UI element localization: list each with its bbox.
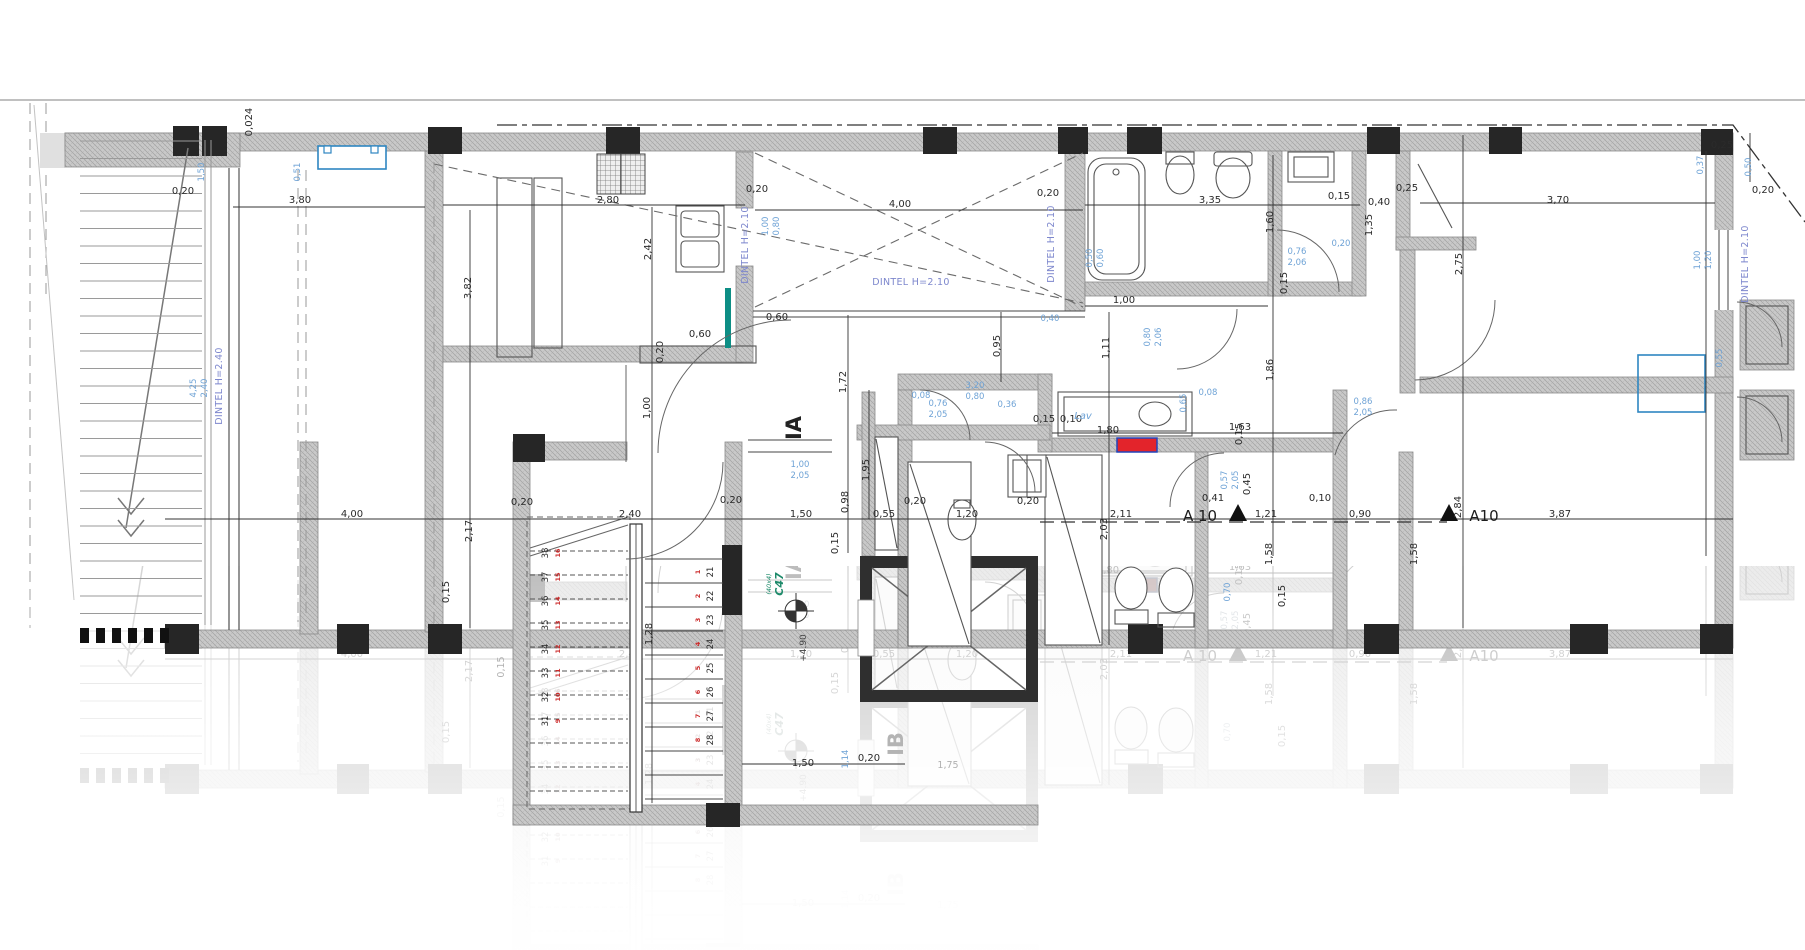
dimension-label: 2,84 [1453,496,1464,518]
dimension-label: 0,25 [1711,140,1733,151]
step-number-red: 16 [554,548,562,558]
opening-dimension-label: 0,57 [1220,471,1230,490]
opening-dimension-label: 0,76 [929,399,948,409]
stair-direction-line [126,148,188,528]
dimension-label: 0,20 [1037,188,1059,199]
dimension-label: 1,28 [644,623,655,645]
opening-dimension-label: 0,50 [1085,249,1095,268]
dimension-label: 1,20 [956,509,978,520]
dimension-label: 1,00 [642,397,653,419]
lintel-label: DINTEL H=2.10 [1740,225,1751,303]
dimension-label: 3,87 [1549,509,1571,520]
dimension-label: 2,75 [1454,253,1465,275]
dimension-label: 0,15 [1033,414,1055,425]
dimension-label: 0,15 [441,581,452,603]
opening-dimension-label: 2,40 [200,379,210,398]
dimension-label: 1,58 [1409,543,1420,565]
opening-dimension-label: 0,40 [1041,314,1060,324]
dimension-label: 2,03 [1099,518,1110,540]
opening-dimension-label: 0,80 [966,392,985,402]
dimension-label: 1,58 [1264,543,1275,565]
floor-plan-drawing: 0,0240,203,802,800,204,000,203,350,150,2… [0,0,1805,950]
opening-dimension-label: 0,36 [998,400,1017,410]
dimension-label: 0,60 [766,312,788,323]
wall-stub [40,133,65,168]
opening-dimension-label: 0,65 [1179,394,1189,413]
step-number: 36 [541,596,551,607]
opening-dimension-label: 2,05 [1354,408,1373,418]
level-label: +4.90 [799,634,809,662]
dimension-label: 1,86 [1265,359,1276,381]
step-number-red: 7 [694,714,702,719]
unit-label-ghost: IB [884,732,908,756]
lintel-label: DINTEL H=2.10 [872,277,950,288]
dimension-label: 1,95 [861,459,872,481]
step-number-red: 3 [694,618,702,623]
opening-dimension-label: 1,14 [841,750,851,769]
step-number-red: 13 [554,620,562,629]
step-number: 23 [706,615,716,626]
column-size-label: (40x4) [765,573,773,594]
dimension-label: 0,95 [992,335,1003,357]
ghost-dimension-label: 0,15 [496,656,507,677]
dimension-label: 0,15 [1328,191,1350,202]
opening-dimension-label: 2,06 [1288,258,1307,268]
dimension-label: 1,50 [790,509,812,520]
dimension-label: 0,20 [904,496,926,507]
floor-plan-canvas: 0,0240,203,802,800,204,000,203,350,150,2… [0,0,1805,950]
dimension-label: 0,20 [1017,496,1039,507]
railing-post [112,628,121,643]
step-number-red: 4 [694,641,702,646]
dimension-label: 0,40 [1368,197,1390,208]
dimension-label: 2,40 [619,509,641,520]
dimension-label: 1,50 [792,758,814,769]
railing-post [160,628,169,643]
dimension-label: 1,11 [1101,337,1112,359]
dimension-label: 3,80 [289,195,311,206]
toilet [1115,567,1147,609]
teal-lintel-marker [725,288,731,348]
elevator-door [858,600,874,656]
lintel-label: DINTEL H=2.10 [740,206,751,284]
dimension-label: 1,35 [1364,214,1375,236]
step-number: 31 [541,716,551,727]
opening-dimension-label: 0,76 [1288,247,1307,257]
dimension-label: 3,82 [463,277,474,299]
dimension-label: 0,90 [1349,509,1371,520]
dimension-label: 1,00 [1113,295,1135,306]
kitchen-sink [676,206,724,272]
step-number-red: 10 [554,692,562,702]
opening-dimension-label: 2,05 [1231,471,1241,490]
opening-dimension-label: 1,50 [197,163,207,182]
opening-dimension-label: 0,51 [293,163,303,182]
opening-dimension-label: 0,60 [1096,249,1106,268]
opening-dimension-label: 1,00 [791,460,810,470]
opening-dimension-label: 0,80 [1143,328,1153,347]
opening-dimension-label: 0,80 [772,217,782,236]
dimension-label: 3,35 [1199,195,1221,206]
dimension-label: 0,024 [244,108,255,137]
dimension-label: 2,11 [1110,509,1132,520]
railing-post [96,628,105,643]
dimension-label: 0,15 [1234,423,1245,445]
closet-door-leaf [1418,164,1452,228]
step-number: 34 [541,644,551,655]
opening-dimension-label: 4,25 [189,379,199,398]
dimension-label: 1,72 [838,371,849,393]
step-number-red: 11 [554,668,562,678]
step-number-red: 9 [554,718,562,723]
opening-dimension-label: 0,50 [1744,158,1754,177]
dimension-label: 0,15 [830,532,841,554]
opening-dimension-label: 0,86 [1354,397,1373,407]
dimension-label: 4,00 [889,199,911,210]
kitchen-fixtures [497,154,756,363]
dimension-label: 0,20 [746,184,768,195]
opening-dimension-label: 2,05 [929,410,948,420]
section-label: A10 [1469,507,1498,525]
dimension-label: 0,20 [172,186,194,197]
step-number: 26 [706,687,716,698]
bidet [1166,156,1194,194]
highlighted-lintel-marker [1117,438,1157,452]
step-number: 28 [706,735,716,746]
step-number: 25 [706,663,716,674]
void-cross-lines [434,153,1083,307]
dimension-label: 0,20 [858,753,880,764]
toilet [1216,158,1250,198]
opening-dimension-label: 0,37 [1696,156,1706,175]
step-number: 22 [706,591,716,602]
dimension-label: 1,21 [1255,509,1277,520]
dimension-label: 0,41 [1202,493,1224,504]
step-number: 24 [706,639,716,650]
dimension-label: 1,80 [1097,425,1119,436]
lintel-label: DINTEL H=2.10 [1046,205,1057,283]
section-label: A 10 [1183,507,1217,525]
opening-dimension-label: 2,06 [1154,328,1164,347]
unit-label: IA [782,415,806,440]
railing-post [80,628,89,643]
dimension-label: 0,20 [655,341,666,363]
step-number-red: 15 [554,572,562,582]
dimension-label: 0,15 [1277,585,1288,607]
step-number-red: 1 [694,569,702,574]
dimension-label: 0,15 [1279,272,1290,294]
washbasin [948,500,976,540]
dimension-label: 3,70 [1547,195,1569,206]
opening-dimension-label: 1,00 [761,217,771,236]
kitchen-counter [534,178,562,348]
step-number-red: 6 [694,689,702,694]
opening-dimension-label: 0,20 [1332,239,1351,249]
dimension-label: 2,80 [597,195,619,206]
dimension-label: 0,55 [873,509,895,520]
opening-dimension-label: 1,00 [1693,251,1703,270]
step-number: 33 [541,668,551,679]
sink-label: Lav [1074,411,1093,422]
step-number: 27 [706,711,716,722]
opening-dimension-label: 0,70 [1223,583,1233,602]
dimension-label: 0,10 [1309,493,1331,504]
step-number: 32 [541,692,551,703]
ghost-dimension-label: 1,75 [937,760,958,771]
opening-dimension-label: 3,20 [966,381,985,391]
opening-dimension-label: 2,05 [791,471,810,481]
step-number-red: 14 [554,596,562,606]
dimension-label: 0,45 [1242,473,1253,495]
section-marker-triangle [1229,504,1247,521]
railing-post [128,628,137,643]
step-number-red: 5 [694,665,702,670]
opening-dimension-label: 1,20 [1704,251,1714,270]
dimension-label: 4,00 [341,509,363,520]
step-number-red: 2 [694,594,702,599]
railing-post [144,628,153,643]
dimension-label: 0,20 [720,495,742,506]
lintel-label: DINTEL H=2.40 [214,347,225,425]
site-diagonal-line [34,105,74,600]
dimension-label: 0,25 [1396,183,1418,194]
step-number: 21 [706,567,716,578]
step-number: 35 [541,620,551,631]
step-number-red: 8 [694,737,702,742]
step-number-red: 12 [554,644,562,653]
dimension-label: 0,60 [689,329,711,340]
dimension-label: 2,17 [464,520,475,542]
dimension-label: 2,42 [643,238,654,260]
column-label: C47 [773,572,786,596]
opening-dimension-label: 0,55 [1715,349,1725,368]
dimension-label: 0,98 [840,491,851,513]
step-number: 38 [541,548,551,559]
opening-dimension-label: 0,08 [1199,388,1218,398]
stair-arrow-icon [118,498,144,536]
toilet [1159,568,1193,612]
dimension-label: 1,60 [1265,211,1276,233]
dimension-label: 0,20 [1752,185,1774,196]
step-number: 37 [541,572,551,583]
dimension-label: 0,20 [511,497,533,508]
